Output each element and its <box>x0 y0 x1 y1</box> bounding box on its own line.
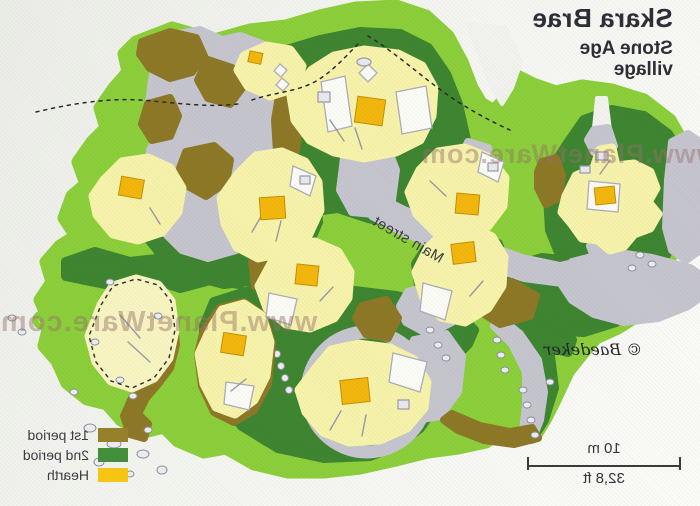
house-annex-top <box>238 46 302 96</box>
scale-bar-line <box>527 457 681 470</box>
copyright-text: © Baedeker <box>534 340 652 359</box>
hearth <box>594 186 616 205</box>
hearth <box>340 378 370 405</box>
legend-row-hearth: Hearth <box>18 465 128 485</box>
legend-swatch-first-period <box>98 428 128 442</box>
hearth <box>455 193 480 215</box>
page-subtitle-line1: Stone Age <box>532 38 673 59</box>
legend-label-hearth: Hearth <box>47 467 89 483</box>
watermark-top: www.PlanetWare.com <box>421 139 700 170</box>
page-title: Skara Brae <box>532 4 673 33</box>
page-subtitle-line2: village <box>532 59 673 80</box>
legend-row-second-period: 2nd period <box>18 445 128 465</box>
scale-bar: 10 m 32,8 ft <box>527 441 681 486</box>
watermark-bottom: www.PlanetWare.com <box>0 306 317 339</box>
legend-label-first-period: 1st period <box>28 427 89 443</box>
legend-swatch-second-period <box>98 448 128 462</box>
scale-imperial: 32,8 ft <box>527 471 681 486</box>
legend-swatch-hearth <box>98 468 128 482</box>
map-page: Skara Brae Stone Age village www.PlanetW… <box>0 0 700 506</box>
scale-metric: 10 m <box>527 441 681 456</box>
hearth <box>118 176 144 199</box>
legend-label-second-period: 2nd period <box>23 447 89 463</box>
hearth <box>259 196 285 220</box>
map-title-block: Skara Brae Stone Age village <box>532 4 673 80</box>
hearth <box>354 96 385 126</box>
legend-row-first-period: 1st period <box>18 425 128 445</box>
hearth <box>248 51 263 64</box>
hearth <box>295 264 319 286</box>
legend: 1st period 2nd period Hearth <box>18 425 128 485</box>
